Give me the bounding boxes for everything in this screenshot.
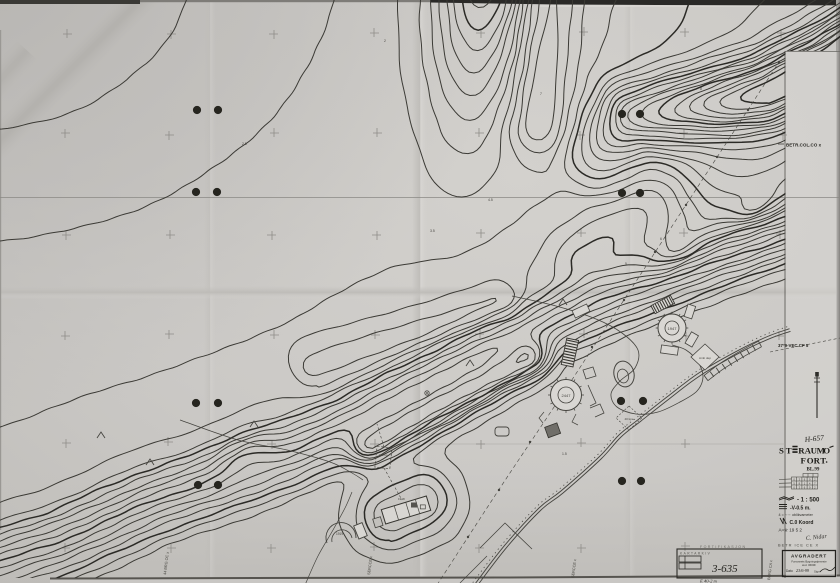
svg-text:6: 6 — [660, 237, 662, 241]
svg-text:BETR ICE CE X: BETR ICE CE X — [778, 543, 819, 548]
svg-text:A≈※ 19 5 2: A≈※ 19 5 2 — [779, 528, 803, 533]
svg-text:5: 5 — [625, 262, 627, 266]
svg-text:-V-0.5 m.: -V-0.5 m. — [790, 506, 811, 512]
svg-text:4 = ∼∼ oblikvameter: 4 = ∼∼ oblikvameter — [779, 513, 814, 517]
svg-text:23/6-99: 23/6-99 — [796, 568, 810, 573]
svg-text:AVGRADERT: AVGRADERT — [791, 554, 827, 559]
svg-text:FORTIFIKASJON: FORTIFIKASJON — [700, 545, 747, 549]
svg-text:avd. 0600F: avd. 0600F — [802, 563, 816, 567]
svg-text:7: 7 — [540, 92, 542, 96]
svg-text:37°9-VEC CF 5: 37°9-VEC CF 5 — [778, 343, 809, 348]
svg-text:O: O — [823, 446, 830, 456]
svg-text:Amb dep: Amb dep — [699, 356, 711, 360]
svg-text:100 kp: 100 kp — [379, 453, 388, 457]
svg-text:1918: 1918 — [398, 497, 405, 501]
svg-text:2: 2 — [384, 39, 386, 43]
svg-text:Sign: Sign — [814, 570, 820, 574]
svg-text:4.5: 4.5 — [488, 198, 493, 202]
svg-text:S: S — [779, 446, 784, 456]
svg-text:- 1 : 500: - 1 : 500 — [797, 498, 820, 504]
svg-text:2447: 2447 — [562, 393, 572, 398]
svg-text:T: T — [820, 456, 826, 466]
svg-text:1947: 1947 — [668, 326, 678, 331]
svg-text:3-635: 3-635 — [711, 563, 738, 575]
svg-text:8: 8 — [700, 87, 702, 91]
svg-text:2.5: 2.5 — [242, 142, 247, 146]
svg-text:F: F — [801, 456, 806, 466]
svg-text:1.5: 1.5 — [562, 452, 567, 456]
svg-text:3.5: 3.5 — [430, 229, 435, 233]
svg-text:E 40-2 m: E 40-2 m — [699, 579, 718, 583]
svg-text:C.0 Koord: C.0 Koord — [790, 520, 814, 526]
svg-text:T: T — [786, 446, 792, 456]
svg-text:Dato: Dato — [786, 569, 793, 573]
svg-text:BL.99: BL.99 — [807, 468, 820, 473]
svg-text:KARTARKIV: KARTARKIV — [680, 552, 711, 556]
svg-text:40 kpe: 40 kpe — [624, 417, 633, 421]
svg-text:1919: 1919 — [336, 532, 343, 536]
svg-text:BETR.COL.CO x: BETR.COL.CO x — [786, 143, 822, 148]
